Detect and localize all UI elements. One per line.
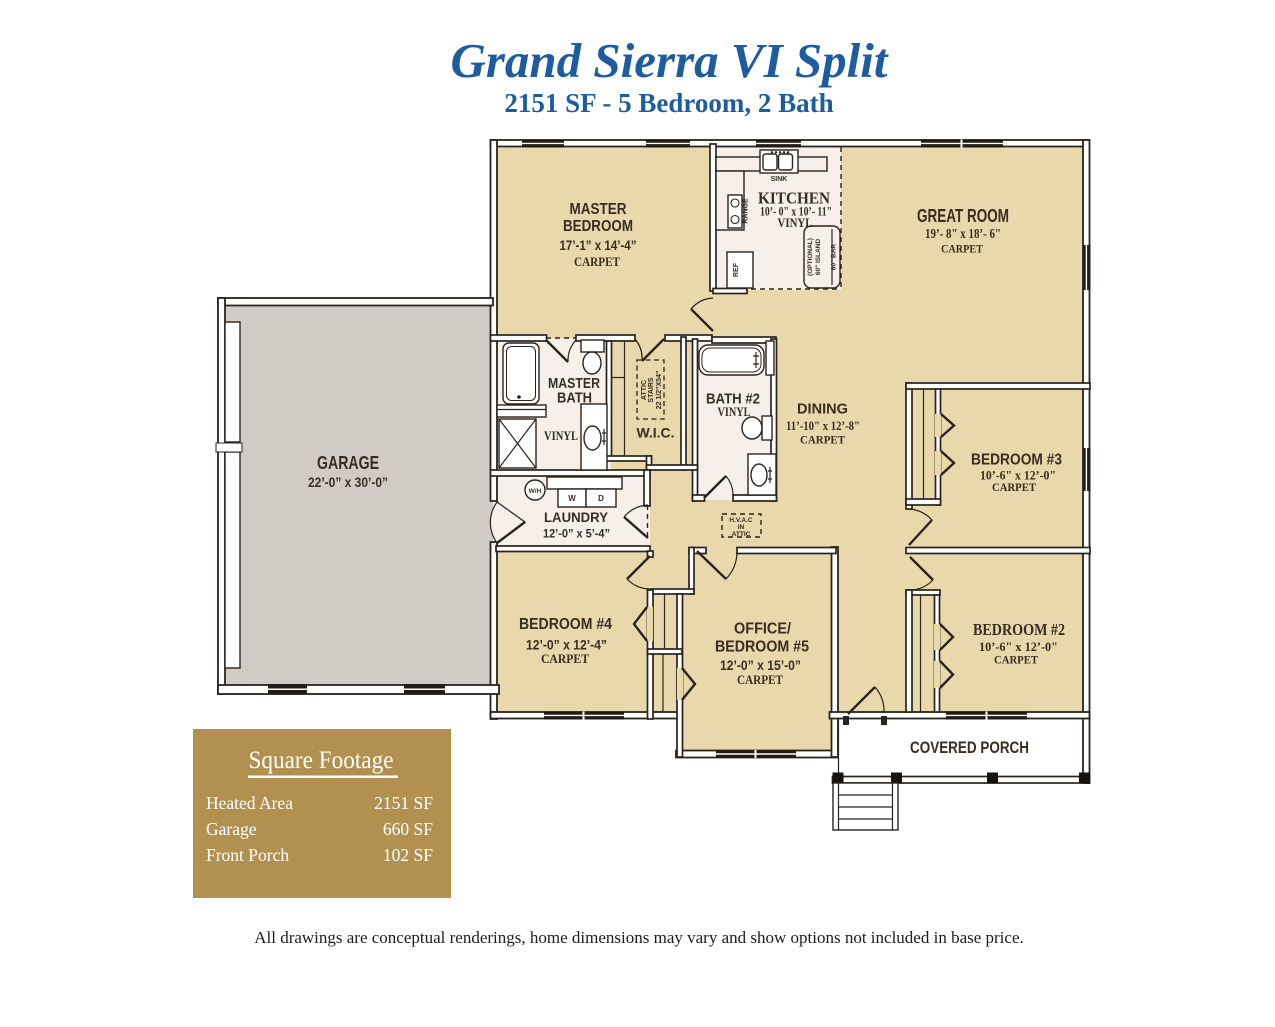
svg-text:CARPET: CARPET: [737, 673, 784, 687]
svg-text:(OPTIONAL): (OPTIONAL): [807, 238, 814, 276]
svg-text:GARAGE: GARAGE: [317, 452, 379, 473]
svg-text:BEDROOM: BEDROOM: [563, 218, 633, 235]
svg-text:LAUNDRY: LAUNDRY: [544, 510, 608, 525]
svg-text:11’-10" x 12’-8": 11’-10" x 12’-8": [786, 418, 860, 433]
svg-text:VINYL: VINYL: [544, 429, 578, 443]
svg-text:CARPET: CARPET: [992, 480, 1036, 494]
svg-text:Heated Area: Heated Area: [206, 793, 293, 813]
svg-text:Garage: Garage: [206, 819, 257, 839]
svg-text:22 1/2"X54": 22 1/2"X54": [656, 371, 663, 410]
svg-text:W.I.C.: W.I.C.: [637, 426, 675, 441]
svg-text:GREAT ROOM: GREAT ROOM: [917, 206, 1009, 226]
svg-text:60" ISLAND: 60" ISLAND: [815, 239, 822, 276]
svg-text:D: D: [598, 494, 604, 503]
svg-text:ATTIC: ATTIC: [641, 380, 648, 400]
svg-text:19’- 8" x 18’- 6": 19’- 8" x 18’- 6": [925, 226, 1001, 241]
svg-text:12’-0” x 5’-4”: 12’-0” x 5’-4”: [543, 529, 610, 541]
svg-text:COVERED PORCH: COVERED PORCH: [910, 738, 1029, 757]
svg-text:BEDROOM #4: BEDROOM #4: [519, 616, 612, 633]
svg-text:Front Porch: Front Porch: [206, 845, 289, 865]
svg-text:REF: REF: [733, 262, 740, 277]
svg-text:VINYL: VINYL: [718, 405, 751, 419]
svg-text:ATTIC: ATTIC: [732, 531, 751, 538]
svg-text:IN: IN: [738, 524, 745, 531]
svg-text:2151 SF - 5 Bedroom, 2 Bath: 2151 SF - 5 Bedroom, 2 Bath: [504, 88, 833, 118]
svg-text:OFFICE/: OFFICE/: [734, 621, 792, 638]
svg-text:CARPET: CARPET: [574, 255, 621, 269]
svg-text:BEDROOM #3: BEDROOM #3: [971, 452, 1062, 469]
svg-text:12’-0” x 12’-4”: 12’-0” x 12’-4”: [526, 638, 607, 653]
svg-text:12’-0” x 15’-0”: 12’-0” x 15’-0”: [720, 658, 801, 673]
svg-text:660 SF: 660 SF: [383, 819, 433, 839]
svg-text:17’-1” x 14’-4”: 17’-1” x 14’-4”: [560, 238, 637, 253]
svg-text:W: W: [568, 494, 576, 503]
svg-text:Grand Sierra VI Split: Grand Sierra VI Split: [450, 33, 888, 88]
svg-text:102 SF: 102 SF: [383, 845, 433, 865]
svg-text:CARPET: CARPET: [994, 653, 1038, 667]
svg-text:Square Footage: Square Footage: [249, 747, 394, 774]
svg-text:BATH: BATH: [557, 391, 592, 407]
svg-text:CARPET: CARPET: [941, 242, 983, 256]
svg-text:VINYL: VINYL: [778, 216, 813, 230]
svg-text:RANGE: RANGE: [743, 198, 750, 224]
svg-text:SINK: SINK: [771, 176, 788, 183]
svg-text:DINING: DINING: [797, 401, 848, 418]
svg-text:H.V.A.C: H.V.A.C: [729, 517, 753, 524]
svg-text:MASTER: MASTER: [570, 201, 627, 218]
svg-text:BEDROOM #5: BEDROOM #5: [715, 639, 809, 656]
svg-text:CARPET: CARPET: [541, 652, 590, 666]
svg-text:22’-0” x 30’-0”: 22’-0” x 30’-0”: [308, 474, 388, 490]
svg-text:2151 SF: 2151 SF: [374, 793, 433, 813]
svg-text:60" BAR: 60" BAR: [831, 244, 838, 271]
svg-text:W/H: W/H: [529, 488, 542, 495]
svg-text:BEDROOM #2: BEDROOM #2: [973, 620, 1065, 639]
svg-text:All drawings are conceptual re: All drawings are conceptual renderings, …: [254, 928, 1024, 947]
svg-text:STAIRS: STAIRS: [648, 377, 655, 402]
svg-text:CARPET: CARPET: [800, 433, 845, 447]
